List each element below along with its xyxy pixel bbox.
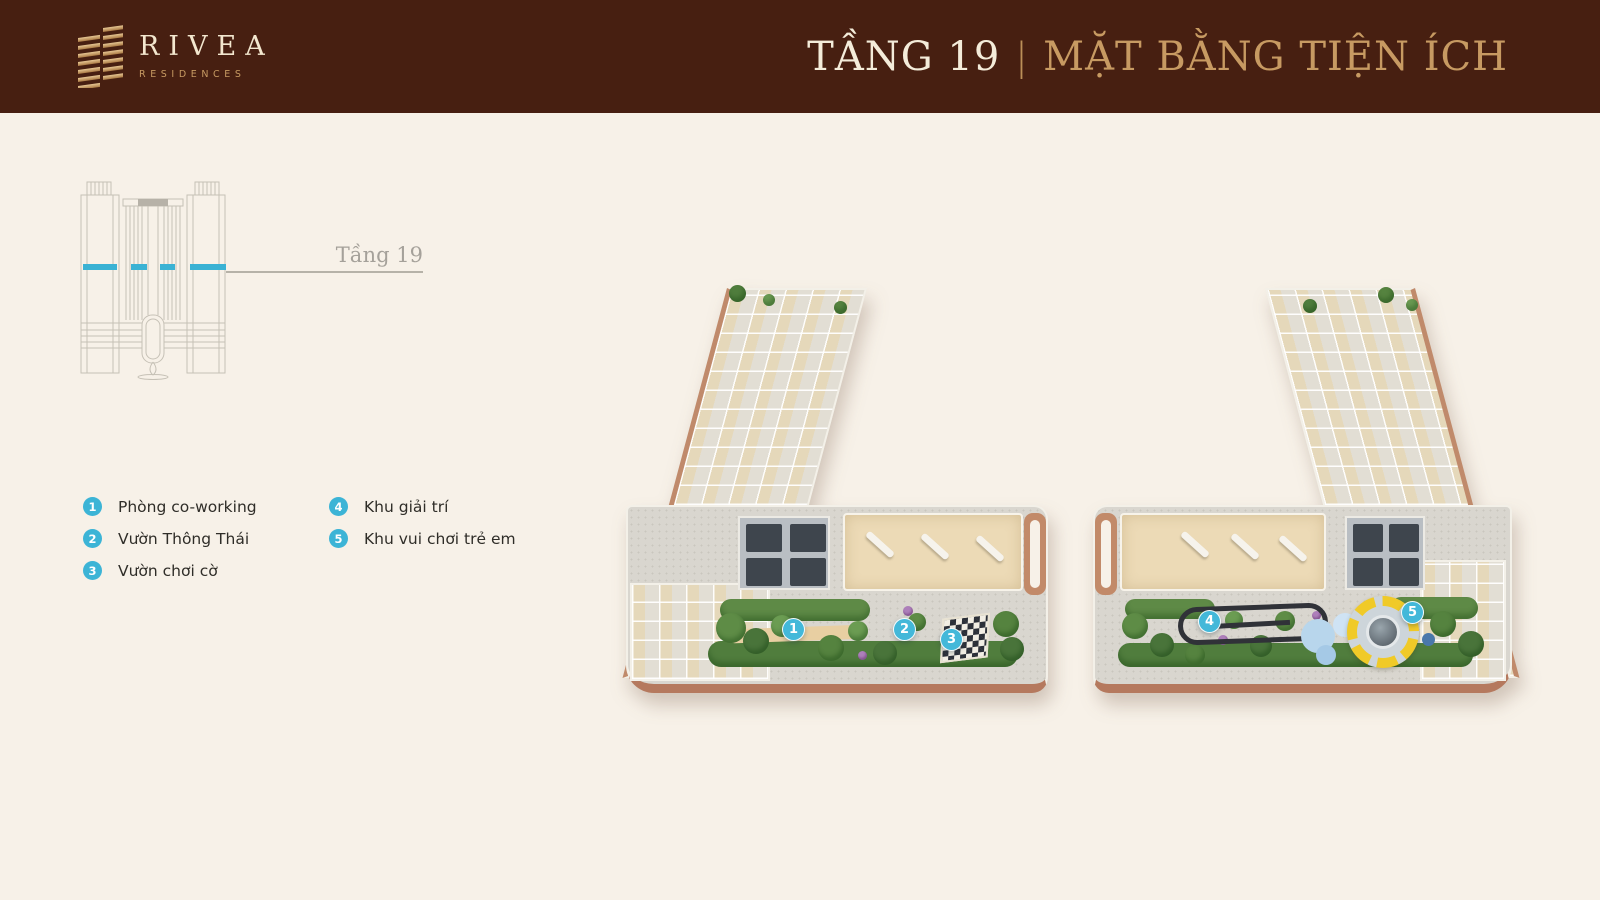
legend-label-3: Vườn chơi cờ bbox=[118, 562, 218, 580]
legend-marker-2: 2 bbox=[83, 529, 102, 548]
splash-pad bbox=[1422, 633, 1435, 646]
legend-item-5: 5 Khu vui chơi trẻ em bbox=[329, 529, 516, 548]
brand: RIVEA RESIDENCES bbox=[78, 22, 274, 88]
elevator-shaft bbox=[746, 558, 782, 586]
bush bbox=[993, 611, 1019, 637]
brand-tagline: RESIDENCES bbox=[139, 69, 274, 80]
tree bbox=[834, 301, 847, 314]
legend-marker-1: 1 bbox=[83, 497, 102, 516]
playground-slide bbox=[1366, 615, 1400, 649]
bush bbox=[743, 628, 769, 654]
map-marker-5: 5 bbox=[1401, 601, 1424, 624]
elevator-shaft bbox=[1389, 524, 1419, 552]
legend-label-4: Khu giải trí bbox=[364, 498, 448, 516]
legend-item-3: 3 Vườn chơi cờ bbox=[83, 561, 218, 580]
legend-item-1: 1 Phòng co-working bbox=[83, 497, 257, 516]
elevator-shaft bbox=[1389, 558, 1419, 586]
tree bbox=[729, 285, 746, 302]
elevator-core bbox=[1345, 516, 1425, 590]
legend-label-1: Phòng co-working bbox=[118, 498, 257, 516]
elevator-shaft bbox=[790, 558, 826, 586]
floorplan-right: 4 5 bbox=[1090, 283, 1530, 698]
elevation-leader-line bbox=[226, 271, 423, 273]
legend-label-2: Vườn Thông Thái bbox=[118, 530, 249, 548]
bush bbox=[1122, 613, 1148, 639]
elevation-floor-label: Tầng 19 bbox=[331, 243, 423, 267]
brand-name: RIVEA bbox=[139, 31, 274, 62]
floorplan-right-drawing bbox=[1090, 283, 1530, 698]
brand-text: RIVEA RESIDENCES bbox=[139, 31, 274, 80]
floor-19-highlight bbox=[83, 264, 226, 270]
bush bbox=[1458, 631, 1484, 657]
bush bbox=[716, 613, 746, 643]
flower-bed bbox=[858, 651, 867, 660]
legend-item-4: 4 Khu giải trí bbox=[329, 497, 448, 516]
elevator-shaft bbox=[1353, 558, 1383, 586]
tree bbox=[1378, 287, 1394, 303]
title-divider: | bbox=[1018, 35, 1026, 79]
splash-pad bbox=[1316, 645, 1336, 665]
title-floor: TẦNG 19 bbox=[807, 34, 1000, 80]
bush bbox=[818, 635, 844, 661]
elevator-core bbox=[738, 516, 830, 590]
bush bbox=[1000, 637, 1024, 661]
flower-bed bbox=[903, 606, 913, 616]
tree bbox=[1303, 299, 1317, 313]
page: RIVEA RESIDENCES TẦNG 19 | MẶT BẰNG TIỆN… bbox=[0, 0, 1600, 900]
map-marker-1: 1 bbox=[782, 618, 805, 641]
tree bbox=[1406, 299, 1418, 311]
rivea-logo-icon bbox=[78, 22, 124, 88]
bush bbox=[1150, 633, 1174, 657]
bush bbox=[1185, 645, 1205, 665]
map-marker-3: 3 bbox=[940, 628, 963, 651]
elevator-shaft bbox=[790, 524, 826, 552]
legend-marker-3: 3 bbox=[83, 561, 102, 580]
legend-marker-4: 4 bbox=[329, 497, 348, 516]
map-marker-4: 4 bbox=[1198, 610, 1221, 633]
legend-marker-5: 5 bbox=[329, 529, 348, 548]
map-marker-2: 2 bbox=[893, 618, 916, 641]
elevation-drawing bbox=[78, 175, 228, 380]
bush bbox=[1430, 611, 1456, 637]
tree bbox=[763, 294, 775, 306]
floorplan-left: 1 2 3 bbox=[608, 283, 1048, 698]
legend-item-2: 2 Vườn Thông Thái bbox=[83, 529, 249, 548]
page-title: TẦNG 19 | MẶT BẰNG TIỆN ÍCH bbox=[807, 0, 1508, 113]
title-subtitle: MẶT BẰNG TIỆN ÍCH bbox=[1043, 34, 1508, 80]
elevator-shaft bbox=[1353, 524, 1383, 552]
bush bbox=[873, 641, 897, 665]
legend: 1 Phòng co-working 2 Vườn Thông Thái 3 V… bbox=[83, 497, 563, 597]
slab-handle bbox=[1095, 513, 1117, 595]
slab-handle bbox=[1024, 513, 1046, 595]
bush bbox=[848, 621, 868, 641]
elevator-shaft bbox=[746, 524, 782, 552]
header-bar: RIVEA RESIDENCES TẦNG 19 | MẶT BẰNG TIỆN… bbox=[0, 0, 1600, 113]
floorplan-left-drawing bbox=[608, 283, 1048, 698]
legend-label-5: Khu vui chơi trẻ em bbox=[364, 530, 516, 548]
building-elevation: Tầng 19 bbox=[78, 175, 358, 385]
